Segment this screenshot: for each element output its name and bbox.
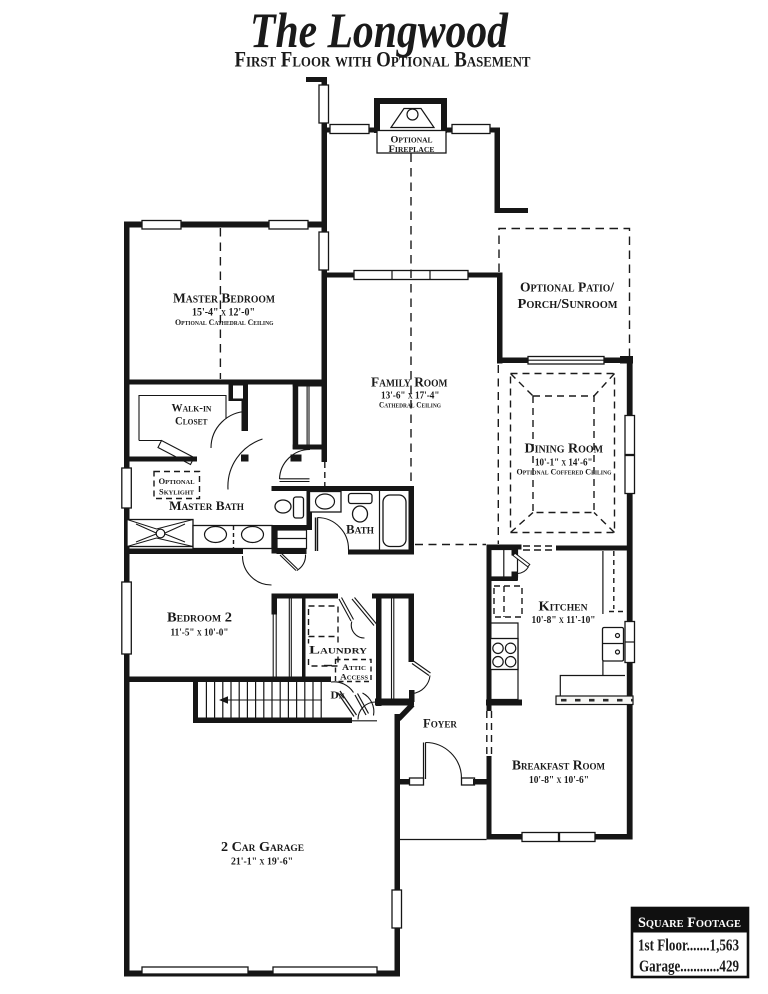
svg-text:Skylight: Skylight [159, 488, 194, 497]
svg-text:Porch/Sunroom: Porch/Sunroom [518, 297, 619, 312]
svg-text:Square Footage: Square Footage [638, 915, 741, 931]
svg-text:11'-5" x 10'-0": 11'-5" x 10'-0" [171, 627, 229, 639]
svg-text:Kitchen: Kitchen [539, 599, 589, 614]
svg-text:Optional Cathedral Ceiling: Optional Cathedral Ceiling [175, 317, 274, 327]
svg-text:Master Bedroom: Master Bedroom [173, 292, 276, 307]
svg-text:Family Room: Family Room [371, 376, 448, 391]
svg-text:Laundry: Laundry [309, 643, 367, 657]
svg-text:Dining Room: Dining Room [525, 442, 604, 457]
svg-text:21'-1" x 19'-6": 21'-1" x 19'-6" [231, 856, 293, 868]
svg-text:Access: Access [340, 672, 369, 682]
svg-text:Closet: Closet [175, 416, 208, 428]
svg-text:10'-8" x 10'-6": 10'-8" x 10'-6" [529, 774, 589, 786]
svg-text:Bath: Bath [346, 523, 374, 537]
svg-text:Optional Coffered Ceiling: Optional Coffered Ceiling [517, 467, 612, 477]
svg-text:Attic: Attic [342, 662, 366, 672]
svg-text:Optional: Optional [159, 477, 195, 486]
svg-text:Bedroom 2: Bedroom 2 [167, 610, 232, 625]
svg-text:Walk-in: Walk-in [172, 403, 212, 415]
svg-text:Optional: Optional [391, 136, 433, 146]
svg-text:1st Floor.......1,563: 1st Floor.......1,563 [638, 936, 739, 955]
svg-text:Optional Patio/: Optional Patio/ [520, 281, 615, 296]
svg-text:Master Bath: Master Bath [169, 498, 244, 513]
svg-text:10'-8" x 11'-10": 10'-8" x 11'-10" [532, 614, 596, 626]
svg-text:Garage............429: Garage............429 [639, 957, 739, 976]
svg-text:Foyer: Foyer [423, 717, 458, 731]
svg-text:First Floor with Optional Base: First Floor with Optional Basement [235, 47, 531, 72]
svg-text:Cathedral Ceiling: Cathedral Ceiling [379, 401, 441, 410]
svg-text:2 Car Garage: 2 Car Garage [221, 839, 304, 854]
svg-text:Breakfast Room: Breakfast Room [512, 758, 606, 773]
